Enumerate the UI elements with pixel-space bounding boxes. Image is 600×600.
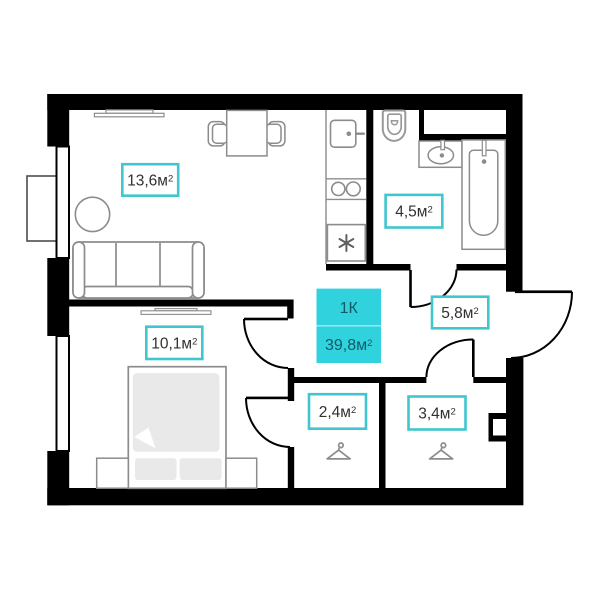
- svg-text:10,1м2: 10,1м2: [151, 335, 197, 352]
- svg-text:13,6м2: 13,6м2: [127, 173, 173, 190]
- svg-text:3,4м2: 3,4м2: [418, 406, 456, 423]
- svg-text:2,4м2: 2,4м2: [319, 404, 357, 421]
- svg-text:4,5м2: 4,5м2: [395, 204, 433, 221]
- svg-text:5,8м2: 5,8м2: [441, 305, 479, 322]
- svg-text:39,8м2: 39,8м2: [325, 337, 372, 354]
- svg-text:1К: 1К: [340, 300, 359, 317]
